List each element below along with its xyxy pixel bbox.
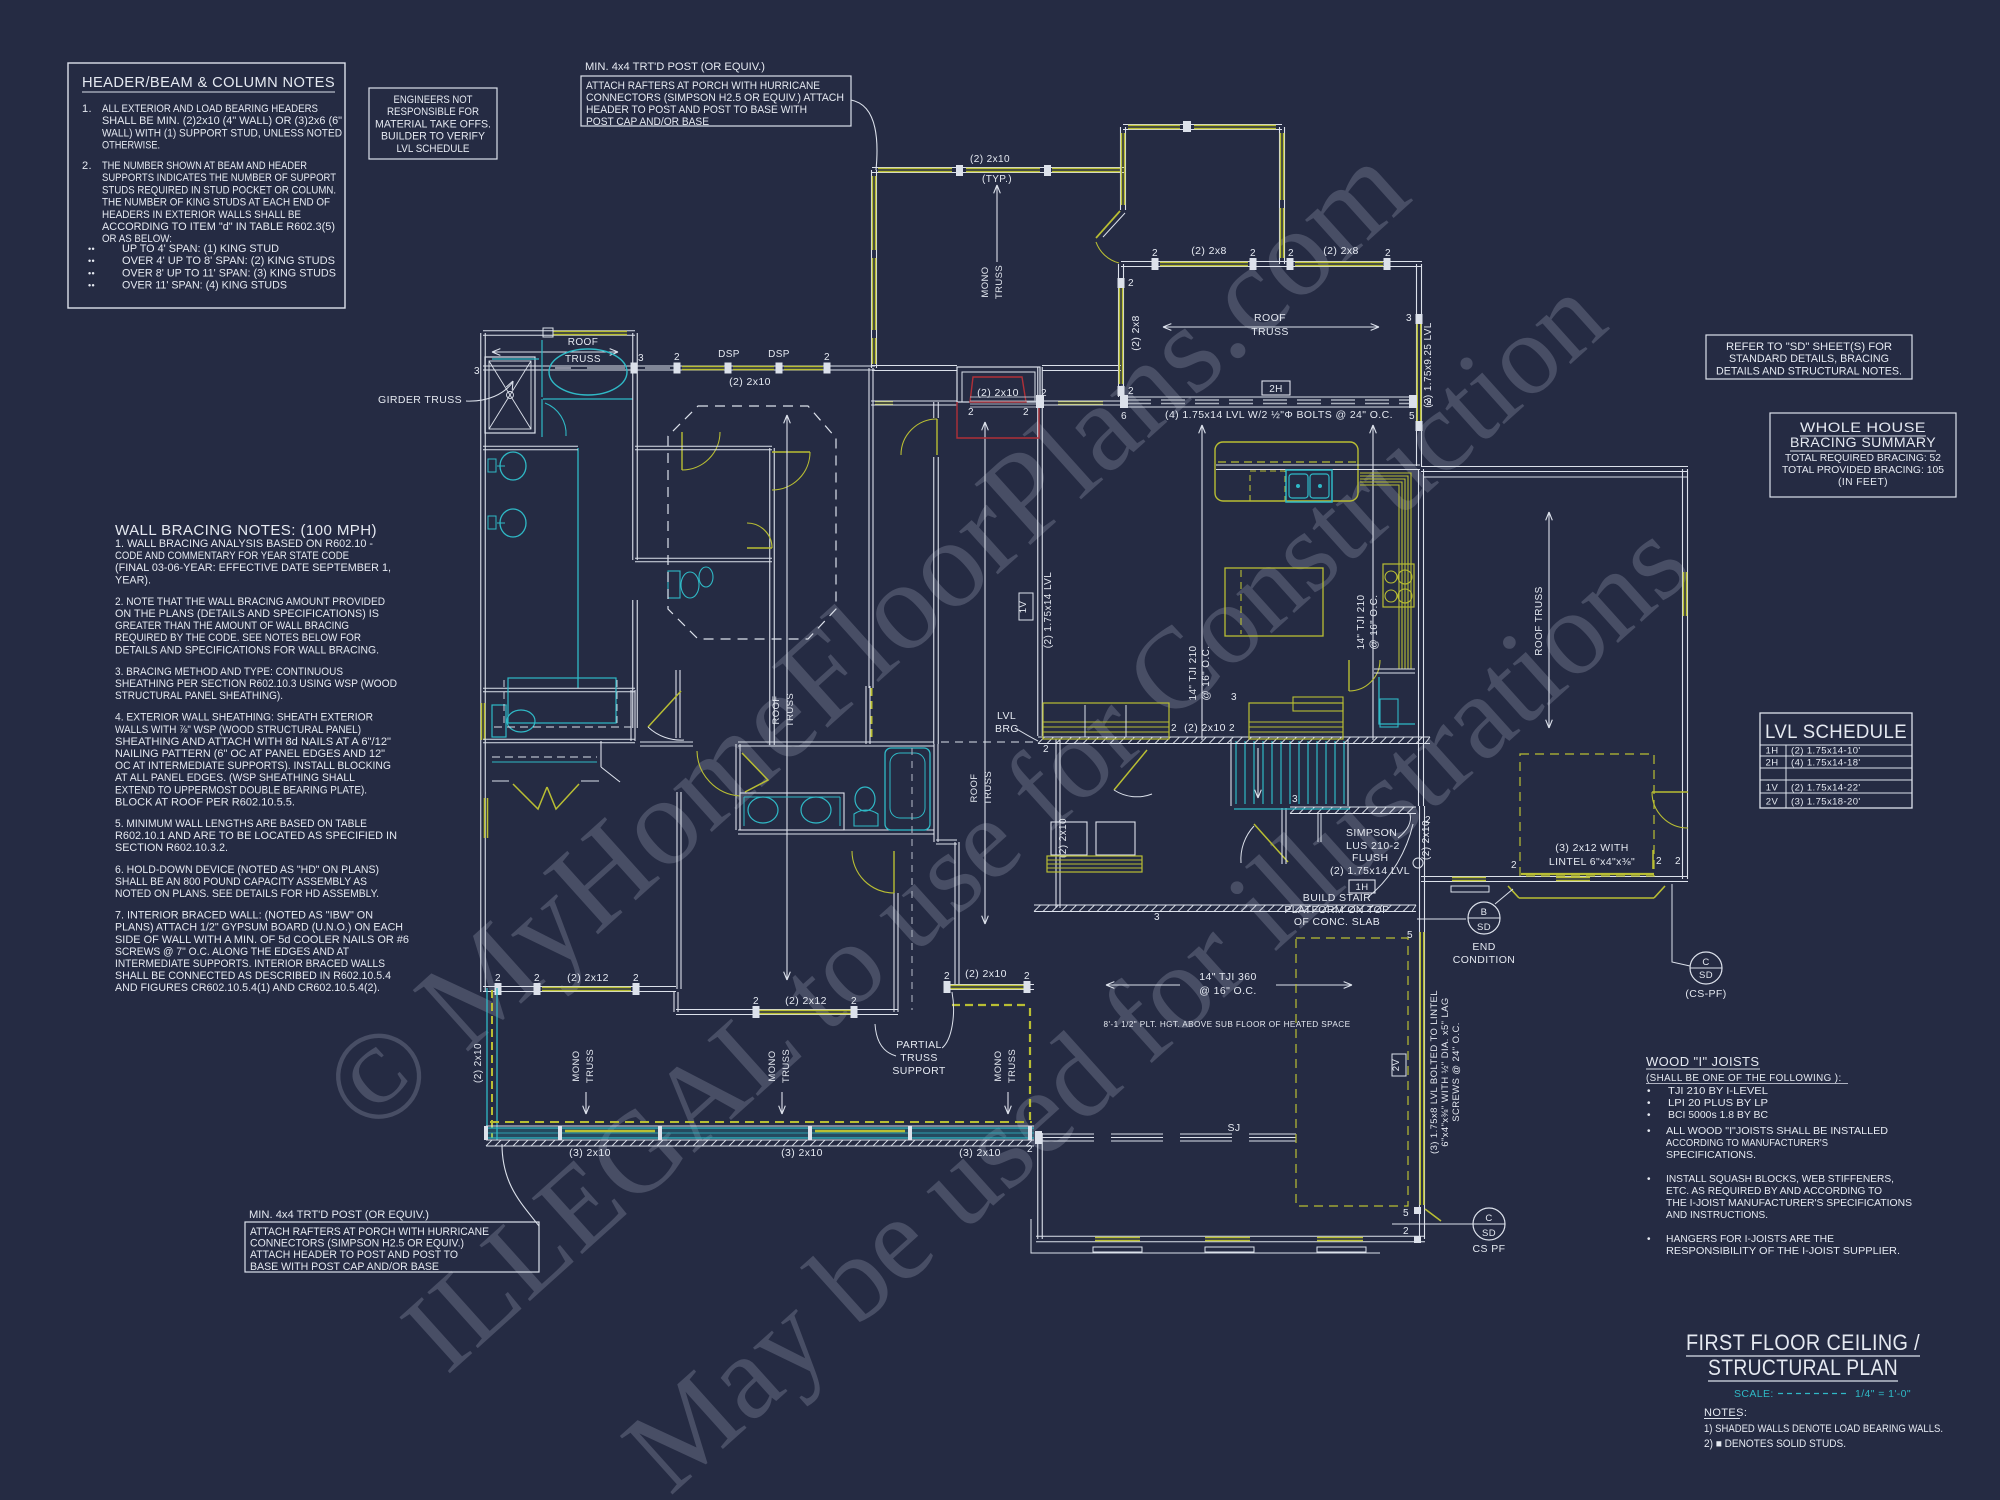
svg-text:INSTALL SQUASH BLOCKS, WEB STI: INSTALL SQUASH BLOCKS, WEB STIFFENERS, (1666, 1173, 1894, 1185)
svg-text:LVL: LVL (997, 710, 1016, 722)
svg-text:5: 5 (1409, 411, 1415, 422)
svg-text:SHALL BE AN 800 POUND CAPACITY: SHALL BE AN 800 POUND CAPACITY ASSEMBLY … (115, 876, 367, 888)
svg-text:WHOLE HOUSE: WHOLE HOUSE (1800, 419, 1926, 435)
svg-text:UP TO 4' SPAN: (1) KING STUD: UP TO 4' SPAN: (1) KING STUD (122, 243, 279, 255)
svg-text:(2) 2x10: (2) 2x10 (1058, 818, 1069, 858)
svg-text:PLANS) ATTACH 1/2" GYPSUM BOAR: PLANS) ATTACH 1/2" GYPSUM BOARD (U.N.O.)… (115, 922, 403, 934)
svg-text:(2) 2x10: (2) 2x10 (473, 1043, 484, 1083)
svg-text:STRUCTURAL PANEL SHEATHING).: STRUCTURAL PANEL SHEATHING). (115, 690, 283, 702)
svg-text:YEAR).: YEAR). (115, 574, 151, 586)
svg-text:14" TJI 210: 14" TJI 210 (1188, 645, 1199, 700)
svg-text:HEADERS IN EXTERIOR WALLS SHAL: HEADERS IN EXTERIOR WALLS SHALL BE (102, 209, 301, 221)
svg-text:SCALE:: SCALE: (1734, 1388, 1774, 1400)
svg-text:2. NOTE THAT THE WALL BRACING: 2. NOTE THAT THE WALL BRACING AMOUNT PRO… (115, 596, 385, 608)
svg-text:••: •• (88, 256, 95, 266)
svg-text:(TYP.): (TYP.) (982, 174, 1012, 185)
svg-text:WOOD "I" JOISTS: WOOD "I" JOISTS (1646, 1054, 1759, 1069)
svg-text:2: 2 (1043, 744, 1049, 755)
svg-text:(2) 1.75x9.25 LVL: (2) 1.75x9.25 LVL (1423, 322, 1434, 408)
svg-text:HEADER/BEAM & COLUMN NOTES: HEADER/BEAM & COLUMN NOTES (82, 74, 335, 91)
svg-text:(CS-PF): (CS-PF) (1685, 988, 1726, 1000)
svg-text:TOTAL PROVIDED BRACING: 105: TOTAL PROVIDED BRACING: 105 (1782, 465, 1944, 476)
svg-text:14" TJI 210: 14" TJI 210 (1356, 594, 1367, 649)
svg-text:DETAILS AND SPECIFICATIONS FOR: DETAILS AND SPECIFICATIONS FOR WALL BRAC… (115, 644, 379, 656)
svg-text:REFER TO "SD" SHEET(S) FOR: REFER TO "SD" SHEET(S) FOR (1726, 341, 1892, 353)
svg-text:2: 2 (1288, 248, 1294, 259)
svg-text:LVL SCHEDULE: LVL SCHEDULE (397, 143, 470, 155)
svg-text:2: 2 (1250, 248, 1256, 259)
svg-text:1) SHADED WALLS DENOTE LOAD BE: 1) SHADED WALLS DENOTE LOAD BEARING WALL… (1704, 1423, 1943, 1435)
svg-text:LVL SCHEDULE: LVL SCHEDULE (1765, 722, 1907, 743)
svg-text:SHALL BE MIN. (2)2x10 (4" WALL: SHALL BE MIN. (2)2x10 (4" WALL) OR (3)2x… (102, 115, 342, 127)
svg-text:THE NUMBER OF KING STUDS AT EA: THE NUMBER OF KING STUDS AT EACH END OF (102, 197, 330, 209)
svg-text:2: 2 (1403, 1226, 1409, 1237)
svg-text:1V: 1V (1018, 601, 1029, 614)
svg-text:•: • (1647, 1126, 1651, 1137)
svg-text:TRUSS: TRUSS (585, 1049, 596, 1083)
svg-text:14" TJI 360: 14" TJI 360 (1199, 971, 1257, 983)
svg-text:HANGERS FOR I-JOISTS ARE THE: HANGERS FOR I-JOISTS ARE THE (1666, 1233, 1834, 1245)
svg-text:REQUIRED BY THE CODE. SEE NOTE: REQUIRED BY THE CODE. SEE NOTES BELOW FO… (115, 632, 361, 644)
svg-text:SJ: SJ (1227, 1122, 1240, 1134)
svg-text:2: 2 (674, 352, 680, 363)
svg-text:8'-1 1/2" PLT. HGT. ABOVE SUB: 8'-1 1/2" PLT. HGT. ABOVE SUB FLOOR OF H… (1104, 1020, 1351, 1029)
svg-text:TJI 210 BY I-LEVEL: TJI 210 BY I-LEVEL (1668, 1085, 1768, 1097)
svg-text:2V: 2V (1766, 797, 1779, 808)
svg-text:(3) 2x10: (3) 2x10 (781, 1147, 823, 1159)
svg-text:(3) 1.75x8 LVL BOLTED TO LINTE: (3) 1.75x8 LVL BOLTED TO LINTEL (1429, 990, 1440, 1154)
svg-text:NAILING PATTERN (6" OC AT PANE: NAILING PATTERN (6" OC AT PANEL EDGES AN… (115, 748, 385, 760)
svg-text:BRACING SUMMARY: BRACING SUMMARY (1790, 434, 1936, 450)
svg-text:1/4" = 1'-0": 1/4" = 1'-0" (1855, 1388, 1911, 1400)
svg-text:2: 2 (1229, 723, 1235, 734)
svg-text:C: C (1485, 1213, 1492, 1224)
svg-text:MIN. 4x4 TRT'D POST (OR EQUIV.: MIN. 4x4 TRT'D POST (OR EQUIV.) (585, 61, 765, 73)
svg-text:2: 2 (1675, 856, 1681, 867)
svg-text:5: 5 (1403, 1208, 1409, 1219)
svg-text:(3) 2x12 WITH: (3) 2x12 WITH (1555, 842, 1628, 854)
svg-text:(2) 1.75x14-22': (2) 1.75x14-22' (1791, 783, 1861, 794)
svg-text:SD: SD (1699, 970, 1713, 981)
svg-text:ACCORDING TO MANUFACTURER'S: ACCORDING TO MANUFACTURER'S (1666, 1137, 1828, 1149)
svg-text:OVER 11' SPAN: (4) KING STUDS: OVER 11' SPAN: (4) KING STUDS (122, 280, 287, 292)
svg-text:TRUSS: TRUSS (781, 1049, 792, 1083)
svg-text:SD: SD (1477, 922, 1491, 933)
svg-text:3: 3 (1231, 692, 1237, 703)
svg-text:1.: 1. (82, 103, 92, 115)
svg-text:BRG: BRG (995, 723, 1019, 735)
svg-text:4. EXTERIOR WALL SHEATHING: SH: 4. EXTERIOR WALL SHEATHING: SHEATH EXTER… (115, 712, 373, 724)
svg-text:SUPPORTS INDICATES THE NUMBER: SUPPORTS INDICATES THE NUMBER OF SUPPORT (102, 172, 336, 184)
svg-text:RESPONSIBLE FOR: RESPONSIBLE FOR (387, 106, 479, 118)
svg-text:END: END (1472, 941, 1495, 953)
svg-text:6"x4"x⅜" WITH ½" DIA. x5" LAG: 6"x4"x⅜" WITH ½" DIA. x5" LAG (1440, 997, 1451, 1146)
svg-text:•: • (1647, 1086, 1651, 1097)
svg-text:RESPONSIBILITY OF THE I-JOIST: RESPONSIBILITY OF THE I-JOIST SUPPLIER. (1666, 1245, 1900, 1257)
svg-text:(SHALL BE ONE OF THE FOLLOWING: (SHALL BE ONE OF THE FOLLOWING ): (1646, 1073, 1842, 1084)
svg-text:R602.10.1 AND ARE TO BE LOCATE: R602.10.1 AND ARE TO BE LOCATED AS SPECI… (115, 830, 397, 842)
svg-text:•: • (1647, 1110, 1651, 1121)
svg-text:BLOCK AT ROOF PER R602.10.5.5.: BLOCK AT ROOF PER R602.10.5.5. (115, 796, 295, 808)
svg-text:GREATER THAN THE AMOUNT OF WAL: GREATER THAN THE AMOUNT OF WALL BRACING (115, 620, 349, 632)
svg-text:CONNECTORS (SIMPSON H2.5 OR EQ: CONNECTORS (SIMPSON H2.5 OR EQUIV.) ATTA… (586, 92, 844, 104)
svg-text:ROOF TRUSS: ROOF TRUSS (1534, 586, 1545, 655)
svg-text:2H: 2H (1766, 758, 1779, 769)
svg-text:TOTAL REQUIRED BRACING: 52: TOTAL REQUIRED BRACING: 52 (1785, 453, 1941, 464)
svg-text:OVER 4' UP TO 8' SPAN: (2) KIN: OVER 4' UP TO 8' SPAN: (2) KING STUDS (122, 255, 335, 267)
svg-text:B: B (1481, 907, 1488, 918)
svg-text:@ 16" O.C.: @ 16" O.C. (1369, 595, 1380, 650)
svg-text:1V: 1V (1766, 783, 1779, 794)
svg-text:MONO: MONO (980, 266, 991, 297)
svg-text:(3) 2x10: (3) 2x10 (569, 1147, 611, 1159)
svg-text:2: 2 (1426, 397, 1432, 408)
svg-text:GIRDER TRUSS: GIRDER TRUSS (378, 394, 462, 406)
svg-text:@ 16" O.C.: @ 16" O.C. (1201, 646, 1212, 701)
svg-text:AND INSTRUCTIONS.: AND INSTRUCTIONS. (1666, 1209, 1768, 1221)
svg-text:BUILD STAIR: BUILD STAIR (1303, 892, 1371, 904)
svg-text:DSP: DSP (768, 349, 790, 360)
svg-text:ATTACH RAFTERS AT PORCH WITH H: ATTACH RAFTERS AT PORCH WITH HURRICANE (250, 1226, 489, 1238)
svg-text:2: 2 (1152, 248, 1158, 259)
svg-text:(3) 1.75x18-20': (3) 1.75x18-20' (1791, 797, 1861, 808)
svg-text:2: 2 (851, 996, 857, 1007)
svg-text:MONO: MONO (571, 1050, 582, 1081)
svg-text:BUILDER TO VERIFY: BUILDER TO VERIFY (381, 131, 486, 143)
svg-text:2: 2 (1128, 278, 1134, 289)
svg-text:ALL EXTERIOR AND LOAD BEARING: ALL EXTERIOR AND LOAD BEARING HEADERS (102, 103, 318, 115)
svg-text:(2) 2x10: (2) 2x10 (729, 376, 771, 388)
svg-text:2H: 2H (1269, 384, 1283, 395)
svg-text:5. MINIMUM WALL LENGTHS ARE BA: 5. MINIMUM WALL LENGTHS ARE BASED ON TAB… (115, 818, 367, 830)
svg-text:SHALL BE CONNECTED AS DESCRIBE: SHALL BE CONNECTED AS DESCRIBED IN R602.… (115, 970, 391, 982)
svg-text:ENGINEERS NOT: ENGINEERS NOT (394, 94, 473, 106)
svg-text:STUDS REQUIRED IN STUD POCKET: STUDS REQUIRED IN STUD POCKET OR COLUMN. (102, 184, 336, 196)
svg-text:(2) 2x8: (2) 2x8 (1323, 245, 1358, 257)
svg-text:MATERIAL TAKE OFFS.: MATERIAL TAKE OFFS. (375, 118, 491, 130)
svg-text:2: 2 (753, 996, 759, 1007)
svg-text:SIDE OF WALL WITH A MIN. OF 5d: SIDE OF WALL WITH A MIN. OF 5d COOLER NA… (115, 934, 409, 946)
svg-text:EXTEND TO UPPERMOST DOUBLE BEA: EXTEND TO UPPERMOST DOUBLE BEARING PLATE… (115, 784, 367, 796)
svg-text:2: 2 (633, 973, 639, 984)
svg-text:(2) 2x10: (2) 2x10 (970, 154, 1010, 165)
svg-text:NOTED ON PLANS. SEE DETAILS FO: NOTED ON PLANS. SEE DETAILS FOR HD ASSEM… (115, 888, 379, 900)
svg-text:(2) 2x12: (2) 2x12 (567, 972, 609, 984)
svg-text:(3) 2x10: (3) 2x10 (959, 1147, 1001, 1159)
svg-text:PARTIAL: PARTIAL (896, 1039, 942, 1051)
svg-text:MONO: MONO (767, 1050, 778, 1081)
svg-text:C: C (1702, 957, 1709, 968)
svg-text:LUS 210-2: LUS 210-2 (1346, 840, 1400, 852)
svg-text:LPI 20 PLUS BY LP: LPI 20 PLUS BY LP (1668, 1097, 1768, 1109)
svg-text:2: 2 (968, 407, 974, 418)
svg-text:CS PF: CS PF (1473, 1243, 1506, 1255)
svg-text:DSP: DSP (718, 349, 740, 360)
svg-text:6. HOLD-DOWN DEVICE (NOTED AS: 6. HOLD-DOWN DEVICE (NOTED AS "HD" ON PL… (115, 864, 379, 876)
svg-text:SPECIFICATIONS.: SPECIFICATIONS. (1666, 1149, 1756, 1161)
svg-text:TRUSS: TRUSS (1251, 326, 1289, 338)
svg-text:OF CONC. SLAB: OF CONC. SLAB (1294, 916, 1380, 928)
svg-text:SCREWS @ 7" O.C. ALONG THE EDG: SCREWS @ 7" O.C. ALONG THE EDGES AND AT (115, 946, 349, 958)
svg-text:3. BRACING METHOD AND TYPE: CO: 3. BRACING METHOD AND TYPE: CONTINUOUS (115, 666, 343, 678)
svg-text:SD: SD (1482, 1228, 1496, 1239)
svg-text:2: 2 (824, 352, 830, 363)
svg-text:2) ■ DENOTES SOLID STUDS.: 2) ■ DENOTES SOLID STUDS. (1704, 1438, 1846, 1450)
svg-text:SIMPSON: SIMPSON (1346, 827, 1397, 839)
svg-text:(IN FEET): (IN FEET) (1838, 477, 1888, 488)
svg-text:••: •• (88, 244, 95, 254)
svg-text:OVER 8' UP TO 11' SPAN: (3) KI: OVER 8' UP TO 11' SPAN: (3) KING STUDS (122, 267, 336, 279)
svg-text:DETAILS AND STRUCTURAL NOTES.: DETAILS AND STRUCTURAL NOTES. (1716, 365, 1902, 377)
svg-text:AT ALL PANEL EDGES. (WSP SHEAT: AT ALL PANEL EDGES. (WSP SHEATHING SHALL (115, 772, 355, 784)
svg-text:OTHERWISE.: OTHERWISE. (102, 140, 160, 152)
svg-text:POST CAP AND/OR BASE: POST CAP AND/OR BASE (586, 116, 709, 128)
svg-text:ATTACH RAFTERS AT PORCH WITH H: ATTACH RAFTERS AT PORCH WITH HURRICANE (586, 80, 820, 92)
svg-text:••: •• (88, 281, 95, 291)
svg-text:TRUSS: TRUSS (994, 265, 1005, 299)
svg-text:2.: 2. (82, 160, 92, 172)
svg-text:2: 2 (1385, 248, 1391, 259)
svg-text:•: • (1647, 1098, 1651, 1109)
svg-text:(2) 2x10: (2) 2x10 (1184, 722, 1226, 734)
svg-text:1H: 1H (1766, 746, 1779, 757)
svg-text:WALL) WITH (1) SUPPORT STUD, U: WALL) WITH (1) SUPPORT STUD, UNLESS NOTE… (102, 127, 342, 139)
svg-text:BASE WITH POST CAP AND/OR BASE: BASE WITH POST CAP AND/OR BASE (250, 1261, 439, 1273)
svg-text:(2) 2x12: (2) 2x12 (785, 995, 827, 1007)
svg-text:(2) 2x8: (2) 2x8 (1130, 315, 1142, 350)
svg-text:FIRST FLOOR CEILING /: FIRST FLOOR CEILING / (1686, 1330, 1920, 1355)
svg-text:TRUSS: TRUSS (565, 354, 601, 365)
svg-text:ALL WOOD "I"JOISTS SHALL BE IN: ALL WOOD "I"JOISTS SHALL BE INSTALLED (1666, 1125, 1888, 1137)
svg-text:FLUSH: FLUSH (1352, 852, 1388, 864)
svg-text:(2) 2x10: (2) 2x10 (1421, 820, 1432, 860)
svg-text:(2) 2x10: (2) 2x10 (965, 968, 1007, 980)
svg-text:SCREWS @ 24" O.C.: SCREWS @ 24" O.C. (1451, 1022, 1462, 1122)
svg-text:(2) 1.75x14 LVL: (2) 1.75x14 LVL (1043, 572, 1054, 648)
svg-text:2: 2 (1171, 723, 1177, 734)
svg-text:2: 2 (534, 973, 540, 984)
svg-text:(2) 1.75x14 LVL: (2) 1.75x14 LVL (1330, 865, 1410, 877)
svg-text:2V: 2V (1391, 1059, 1402, 1072)
svg-text:•: • (1647, 1234, 1651, 1245)
svg-text:1. WALL BRACING ANALYSIS BASED: 1. WALL BRACING ANALYSIS BASED ON R602.1… (115, 538, 373, 550)
svg-text:•: • (1647, 1174, 1651, 1185)
svg-text:SHEATHING AND ATTACH WITH 8d N: SHEATHING AND ATTACH WITH 8d NAILS AT A … (115, 736, 391, 748)
svg-text:ETC. AS REQUIRED BY AND ACCORD: ETC. AS REQUIRED BY AND ACCORDING TO (1666, 1185, 1882, 1197)
svg-text:(4) 1.75x14-18': (4) 1.75x14-18' (1791, 758, 1861, 769)
svg-text:ON THE PLANS (DETAILS AND SPEC: ON THE PLANS (DETAILS AND SPECIFICATIONS… (115, 608, 379, 620)
svg-text:NOTES:: NOTES: (1704, 1407, 1747, 1419)
svg-text:2: 2 (1023, 407, 1029, 418)
svg-text:@ 16" O.C.: @ 16" O.C. (1199, 985, 1256, 997)
svg-text:ATTACH HEADER TO POST AND POST: ATTACH HEADER TO POST AND POST TO (250, 1249, 458, 1261)
svg-text:••: •• (88, 268, 95, 278)
svg-text:2: 2 (1511, 860, 1517, 871)
svg-text:(4) 1.75x14 LVL W/2 ½"Φ BOLTS: (4) 1.75x14 LVL W/2 ½"Φ BOLTS @ 24" O.C. (1165, 409, 1393, 421)
svg-text:SUPPORT: SUPPORT (892, 1065, 946, 1077)
svg-text:WALLS WITH ⅞" WSP (WOOD STRUCT: WALLS WITH ⅞" WSP (WOOD STRUCTURAL PANEL… (115, 724, 361, 736)
svg-text:THE I-JOIST MANUFACTURER'S SPE: THE I-JOIST MANUFACTURER'S SPECIFICATION… (1666, 1197, 1912, 1209)
svg-text:3: 3 (1292, 794, 1298, 805)
svg-text:(FINAL 03-06-YEAR: EFFECTIVE D: (FINAL 03-06-YEAR: EFFECTIVE DATE SEPTEM… (115, 562, 391, 574)
svg-text:3: 3 (474, 366, 480, 377)
svg-text:TRUSS: TRUSS (1007, 1049, 1018, 1083)
svg-text:LINTEL 6"x4"x⅜": LINTEL 6"x4"x⅜" (1549, 856, 1635, 868)
svg-text:3: 3 (1406, 313, 1412, 324)
svg-text:ACCORDING TO ITEM "d" IN TABLE: ACCORDING TO ITEM "d" IN TABLE R602.3(5) (102, 221, 335, 233)
svg-text:WALL BRACING NOTES: (100 MPH): WALL BRACING NOTES: (100 MPH) (115, 523, 377, 539)
svg-text:ROOF: ROOF (1254, 312, 1286, 324)
svg-text:CODE AND COMMENTARY FOR YEAR S: CODE AND COMMENTARY FOR YEAR STATE CODE (115, 550, 349, 562)
svg-text:2: 2 (1656, 856, 1662, 867)
svg-text:STANDARD DETAILS, BRACING: STANDARD DETAILS, BRACING (1729, 353, 1889, 365)
svg-text:ROOF: ROOF (771, 695, 782, 724)
svg-text:ROOF: ROOF (568, 337, 599, 348)
svg-text:MIN. 4x4 TRT'D POST (OR EQUIV.: MIN. 4x4 TRT'D POST (OR EQUIV.) (249, 1209, 429, 1221)
svg-text:SHEATHING PER SECTION R602.10.: SHEATHING PER SECTION R602.10.3 USING WS… (115, 678, 397, 690)
svg-text:AND FIGURES CR602.10.5.4(1) AN: AND FIGURES CR602.10.5.4(1) AND CR602.10… (115, 982, 380, 994)
svg-text:2: 2 (495, 973, 501, 984)
svg-text:BCI 5000s 1.8 BY BC: BCI 5000s 1.8 BY BC (1668, 1109, 1768, 1121)
svg-text:INTERMEDIATE SUPPORTS. INTERI: INTERMEDIATE SUPPORTS. INTERIOR BRACED W… (115, 958, 385, 970)
svg-text:3: 3 (1154, 912, 1160, 923)
svg-text:CONDITION: CONDITION (1453, 954, 1516, 966)
svg-text:2: 2 (1128, 386, 1134, 397)
svg-text:2: 2 (944, 971, 950, 982)
svg-text:3: 3 (638, 353, 644, 364)
svg-text:(2) 2x8: (2) 2x8 (1191, 245, 1226, 257)
svg-text:2: 2 (1024, 971, 1030, 982)
svg-text:TRUSS: TRUSS (900, 1052, 938, 1064)
svg-text:HEADER TO POST AND POST TO BAS: HEADER TO POST AND POST TO BASE WITH (586, 104, 807, 116)
svg-text:STRUCTURAL PLAN: STRUCTURAL PLAN (1708, 1355, 1898, 1380)
svg-text:MONO: MONO (993, 1050, 1004, 1081)
svg-text:(2) 1.75x14-10': (2) 1.75x14-10' (1791, 746, 1861, 757)
svg-text:OC AT INTERMEDIATE SUPPORTS).: OC AT INTERMEDIATE SUPPORTS). INSTALL BL… (115, 760, 391, 772)
svg-text:CONNECTORS (SIMPSON H2.5 OR EQ: CONNECTORS (SIMPSON H2.5 OR EQUIV.) (250, 1238, 464, 1250)
svg-text:ROOF: ROOF (969, 773, 980, 802)
svg-text:6: 6 (1121, 411, 1127, 422)
svg-text:THE NUMBER SHOWN AT BEAM AND H: THE NUMBER SHOWN AT BEAM AND HEADER (102, 160, 307, 172)
svg-text:7. INTERIOR BRACED WALL: (NOTE: 7. INTERIOR BRACED WALL: (NOTED AS "IBW"… (115, 910, 373, 922)
svg-text:SECTION R602.10.3.2.: SECTION R602.10.3.2. (115, 842, 228, 854)
